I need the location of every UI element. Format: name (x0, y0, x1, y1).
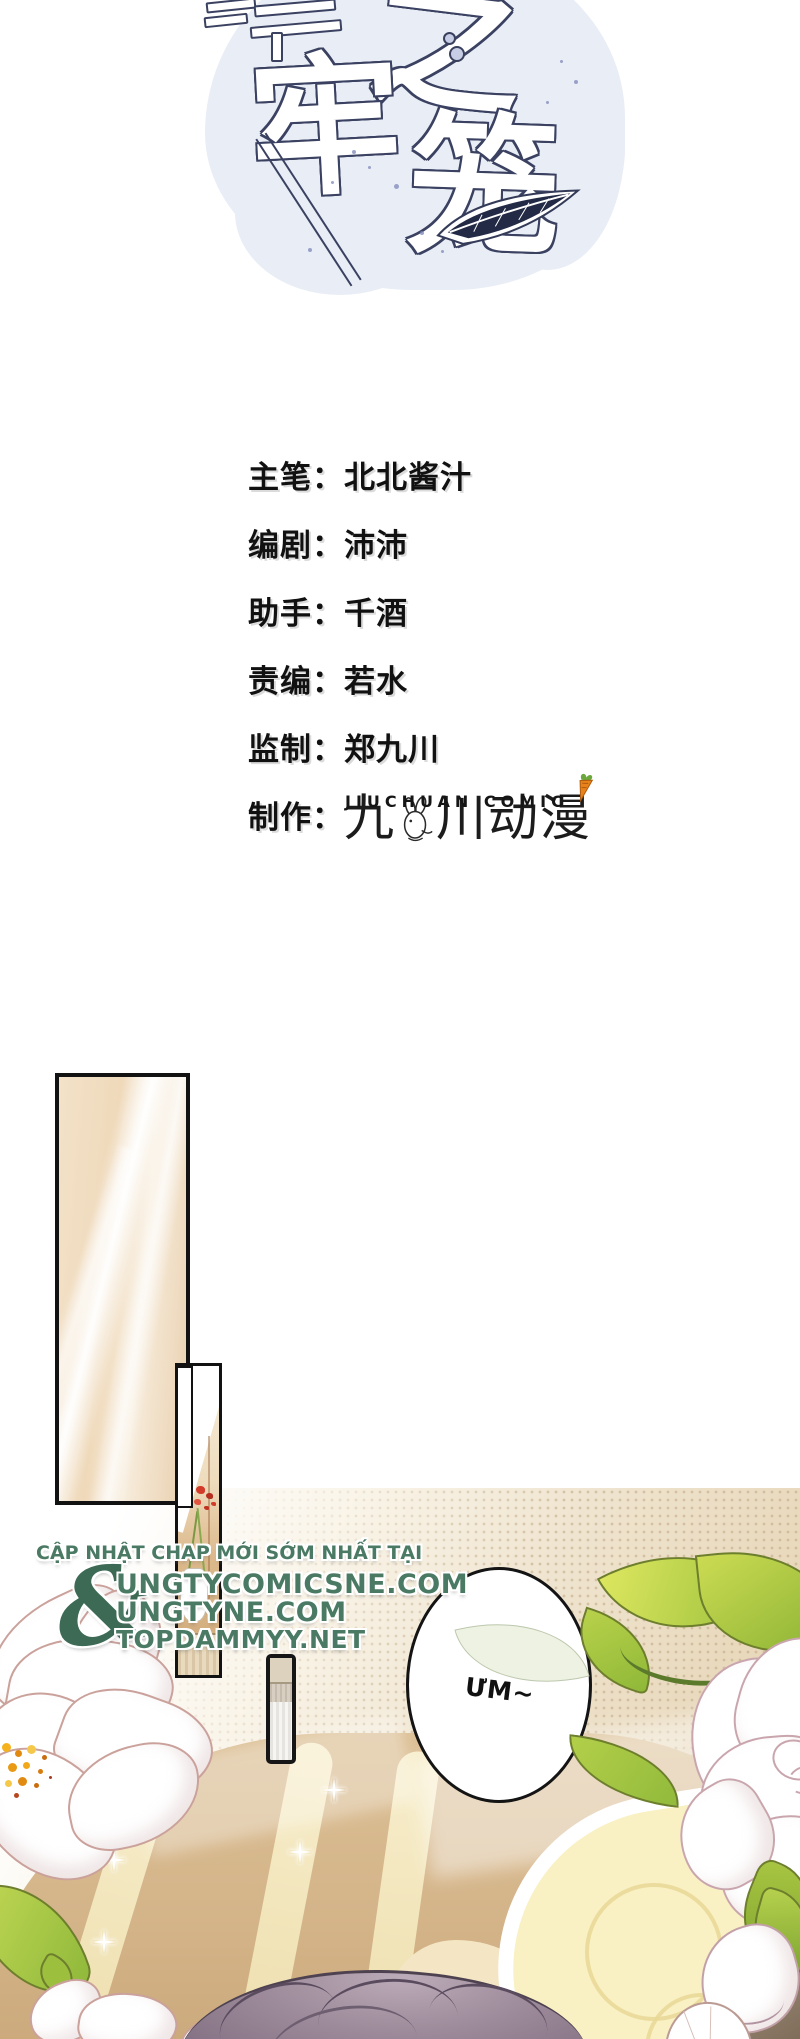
credit-name: 郑九川 (344, 732, 440, 768)
watermark-site: UNGTYNE.COM (116, 1599, 468, 1627)
bottle-cap (270, 1658, 292, 1684)
credit-name: 沛沛 (344, 528, 408, 564)
stamen-cluster (2, 1743, 6, 1747)
perfume-bottle (266, 1654, 296, 1764)
title-char: 牢 (246, 48, 406, 208)
credit-name: 若水 (344, 664, 408, 700)
watermark-site: UNGTYCOMICSNE.COM (116, 1571, 468, 1599)
berry-ornament (443, 32, 456, 45)
role-label: 编剧 (248, 528, 312, 564)
role-label: 主笔 (248, 460, 312, 496)
red-flowers (196, 1486, 202, 1492)
credit-name: 千酒 (344, 596, 408, 632)
role-label: 制作 (248, 800, 312, 836)
speech-text: ƯM~ (463, 1672, 536, 1709)
watermark-site: TOPDAMMYY.NET (116, 1627, 468, 1653)
credit-name: 北北酱汁 (344, 460, 472, 496)
role-label: 监制 (248, 732, 312, 768)
sparkle-icon (322, 1778, 346, 1802)
panel-curtain (55, 1073, 190, 1505)
sparkle-icon (288, 1840, 312, 1864)
role-label: 助手 (248, 596, 312, 632)
role-label: 责编 (248, 664, 312, 700)
credit-row: 编剧：沛沛 (248, 520, 668, 565)
credit-row: 责编：若水 (248, 656, 668, 701)
studio-subtitle: JIUCHUAN COMIC (345, 792, 568, 811)
carrot-icon (568, 769, 599, 806)
title-art: 之 牢 笼 (0, 0, 800, 300)
credit-row: 监制：郑九川 (248, 724, 668, 769)
comic-page: 之 牢 笼 主笔：北北酱汁 编剧：沛沛 助手：千酒 (0, 0, 800, 2039)
credit-row: 主笔：北北酱汁 (248, 452, 668, 497)
sparkle-icon (92, 1930, 116, 1954)
window-frame-strip (176, 1366, 193, 1508)
credit-row: 助手：千酒 (248, 588, 668, 633)
bottle-shoulder (270, 1684, 292, 1702)
berry-ornament (449, 46, 465, 62)
